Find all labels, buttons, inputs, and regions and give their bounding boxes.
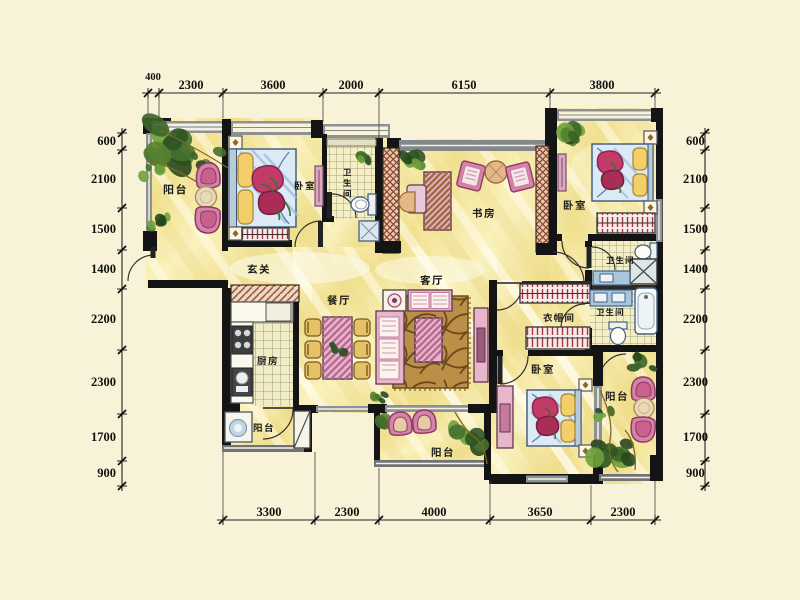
svg-text:2300: 2300 xyxy=(179,78,204,92)
svg-text:1700: 1700 xyxy=(91,430,116,444)
svg-text:900: 900 xyxy=(686,466,705,480)
svg-text:1500: 1500 xyxy=(91,222,116,236)
svg-text:1400: 1400 xyxy=(683,262,708,276)
svg-text:3600: 3600 xyxy=(261,78,286,92)
svg-text:900: 900 xyxy=(97,466,116,480)
svg-text:2200: 2200 xyxy=(91,312,116,326)
svg-text:1700: 1700 xyxy=(683,430,708,444)
svg-text:1500: 1500 xyxy=(683,222,708,236)
svg-text:1400: 1400 xyxy=(91,262,116,276)
svg-text:2200: 2200 xyxy=(683,312,708,326)
svg-text:2300: 2300 xyxy=(335,505,360,519)
svg-text:2300: 2300 xyxy=(611,505,636,519)
svg-text:600: 600 xyxy=(97,134,116,148)
svg-text:2300: 2300 xyxy=(91,375,116,389)
svg-text:3800: 3800 xyxy=(590,78,615,92)
svg-text:4000: 4000 xyxy=(422,505,447,519)
svg-text:2100: 2100 xyxy=(91,172,116,186)
svg-text:6150: 6150 xyxy=(452,78,477,92)
svg-text:3300: 3300 xyxy=(257,505,282,519)
svg-text:2100: 2100 xyxy=(683,172,708,186)
svg-text:600: 600 xyxy=(686,134,705,148)
svg-text:2000: 2000 xyxy=(339,78,364,92)
svg-text:3650: 3650 xyxy=(528,505,553,519)
svg-text:400: 400 xyxy=(145,72,161,83)
svg-text:2300: 2300 xyxy=(683,375,708,389)
